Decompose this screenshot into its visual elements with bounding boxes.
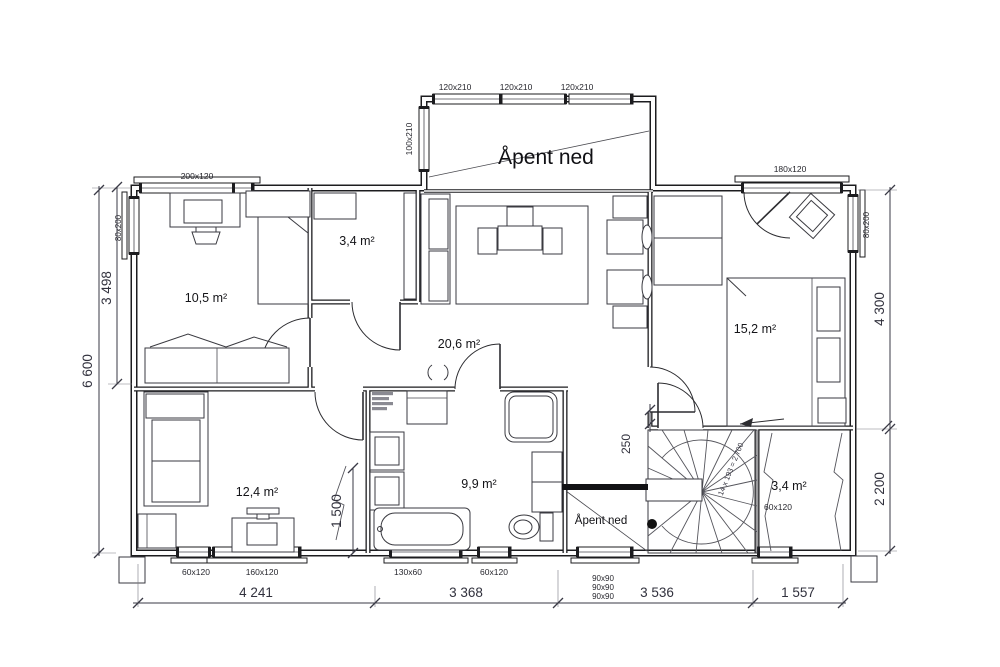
dim-left-total: 6 600 — [80, 354, 95, 388]
window-top-left: 200x120 — [134, 171, 260, 193]
shower — [505, 392, 557, 442]
room-label-storage: 3,4 m² — [771, 479, 806, 493]
office-wardrobe — [145, 334, 289, 383]
living-dining-set — [456, 206, 588, 304]
light-symbol — [428, 365, 448, 380]
window-label: 160x120 — [246, 567, 279, 577]
window-label: 60x120 — [182, 567, 210, 577]
window-label: 120x210 — [439, 82, 472, 92]
window-label-storage: 60x120 — [764, 502, 792, 512]
living-sofa — [421, 194, 450, 304]
stair-calc-label: 14 x 193 = 2 700 — [716, 441, 745, 496]
window-dormers: 120x210 120x210 120x210 — [432, 82, 633, 104]
window-label: 100x210 — [404, 122, 414, 155]
dim-bottom-2: 3 368 — [449, 585, 483, 600]
dim-jog-label: 250 — [619, 434, 633, 454]
dim-right-top: 4 300 — [872, 292, 887, 326]
window-right-wall: 80x200 — [848, 190, 871, 257]
bedroom12-desk — [232, 508, 294, 552]
dim-left-part: 3 498 — [99, 271, 114, 305]
stair-pole-dot — [647, 519, 657, 529]
floor-plan-svg: 200x120 120x210 120x210 120x210 100x210 — [0, 0, 1000, 667]
bathtub — [374, 508, 470, 550]
master-wardrobe — [654, 196, 722, 285]
window-label: 80x200 — [862, 211, 871, 238]
window-top-right: 180x120 — [735, 164, 849, 193]
office-desk — [170, 193, 240, 244]
dim-inner-label: 1 500 — [329, 494, 344, 528]
open-stair-label: Åpent ned — [575, 514, 627, 527]
room-label-bathroom: 9,9 m² — [461, 477, 496, 491]
room-label-living: 20,6 m² — [438, 337, 480, 351]
door-master-bottom — [658, 383, 703, 428]
room-label-bedroom12: 12,4 m² — [236, 485, 278, 499]
spiral-staircase: 14 x 193 = 2 700 — [562, 418, 784, 553]
window-label: 90x90 — [592, 592, 614, 601]
dim-bottom-3: 3 536 — [640, 585, 674, 600]
bathroom-cabinet — [370, 432, 404, 510]
bedroom12-dresser — [138, 514, 176, 548]
dim-bottom-4: 1 557 — [781, 585, 815, 600]
master-nightstand — [818, 398, 846, 423]
window-label: 90x90 — [592, 583, 614, 592]
window-label: 120x210 — [561, 82, 594, 92]
window-dormer-side: 100x210 — [404, 106, 429, 172]
toilet — [509, 513, 553, 541]
window-label: 200x120 — [181, 171, 214, 181]
door-master-top — [744, 192, 790, 238]
dim-right-bottom: 2 200 — [872, 472, 887, 506]
dim-jog: 250 — [619, 404, 655, 454]
window-label: 180x120 — [774, 164, 807, 174]
opening-edge — [562, 484, 648, 490]
dim-inner: 1 500 — [329, 463, 358, 558]
washing-machine — [407, 391, 447, 424]
living-desks — [607, 196, 652, 328]
corner-post-right — [851, 556, 877, 582]
window-label: 120x210 — [500, 82, 533, 92]
bathroom-shelf — [532, 452, 562, 512]
room-label-closet-top: 3,4 m² — [339, 234, 374, 248]
bedroom12-bed — [144, 392, 208, 506]
room-label-master: 15,2 m² — [734, 322, 776, 336]
dim-bottom-1: 4 241 — [239, 585, 273, 600]
window-label: 80x200 — [114, 214, 123, 241]
window-label: 130x60 — [394, 567, 422, 577]
master-chair — [789, 193, 834, 238]
bathroom-note — [372, 392, 393, 410]
floor-plan-page: 200x120 120x210 120x210 120x210 100x210 — [0, 0, 1000, 667]
office-bed — [246, 191, 310, 304]
door-bedroom12 — [315, 392, 363, 440]
stair-landing — [646, 479, 702, 501]
window-label: 90x90 — [592, 574, 614, 583]
corner-post-left — [119, 557, 145, 583]
door-master-side — [650, 367, 695, 412]
room-label-office: 10,5 m² — [185, 291, 227, 305]
window-label: 60x120 — [480, 567, 508, 577]
door-closet-top — [352, 302, 400, 350]
window-left-wall: 80x200 — [114, 192, 139, 259]
open-above-label: Åpent ned — [498, 146, 594, 169]
